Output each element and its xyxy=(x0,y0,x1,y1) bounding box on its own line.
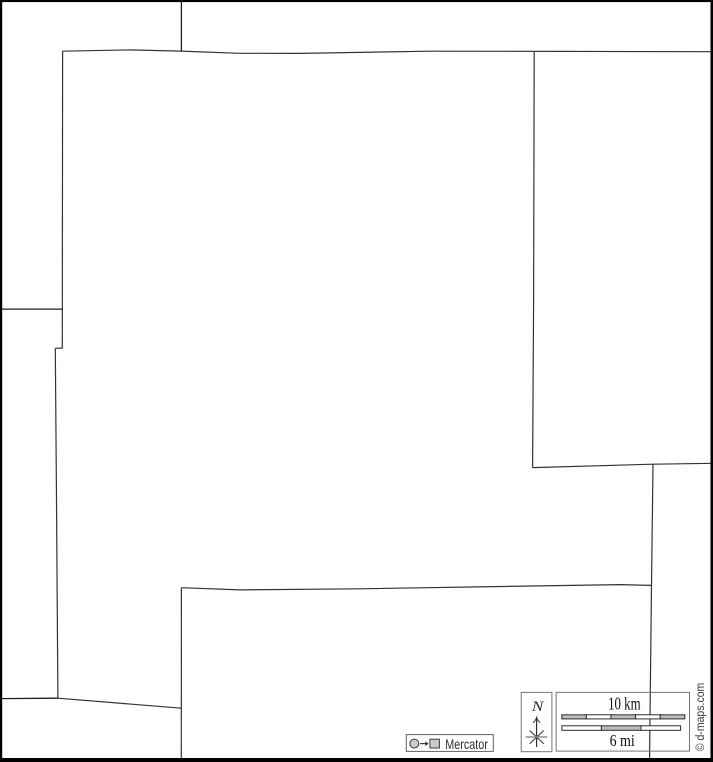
svg-text:Mercator: Mercator xyxy=(445,736,488,752)
svg-text:N: N xyxy=(531,699,545,715)
svg-text:© d-maps.com: © d-maps.com xyxy=(695,683,707,752)
svg-text:6 mi: 6 mi xyxy=(610,731,635,750)
svg-text:10 km: 10 km xyxy=(608,694,641,714)
